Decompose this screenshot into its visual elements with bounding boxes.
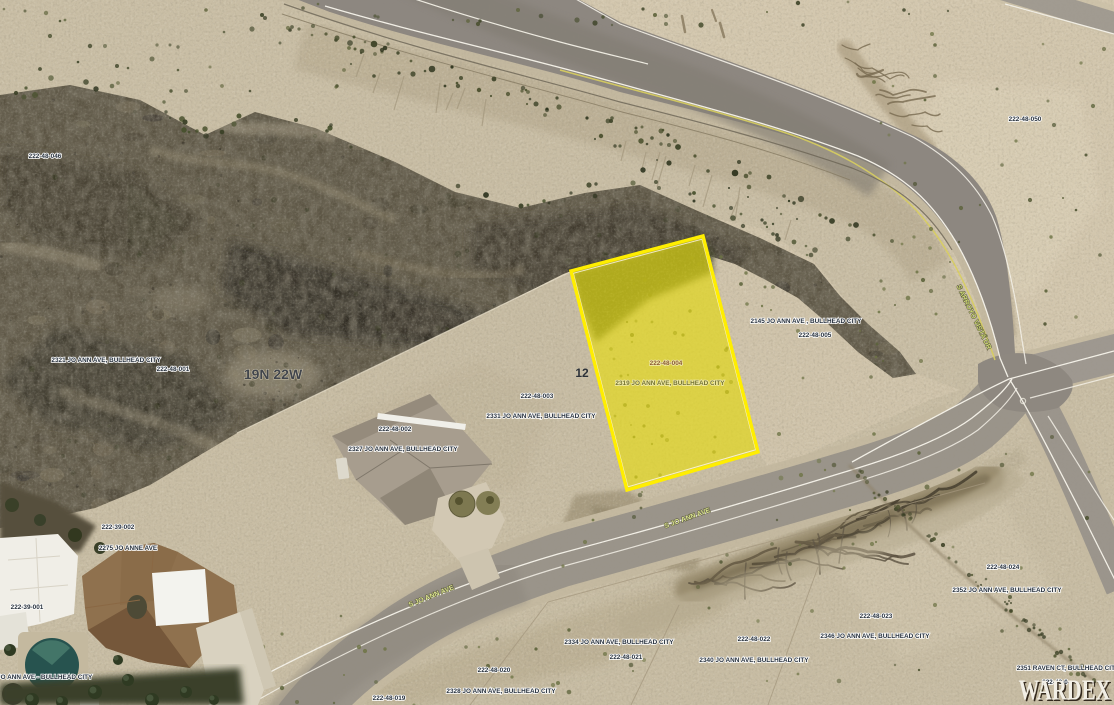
svg-text:222-48-002: 222-48-002 (379, 426, 412, 433)
svg-text:2346 JO ANN AVE, BULLHEAD CITY: 2346 JO ANN AVE, BULLHEAD CITY (820, 633, 930, 640)
svg-text:2327 JO ANN AVE, BULLHEAD CITY: 2327 JO ANN AVE, BULLHEAD CITY (348, 446, 458, 453)
svg-text:2352 JO ANN AVE, BULLHEAD CITY: 2352 JO ANN AVE, BULLHEAD CITY (952, 587, 1062, 594)
svg-text:WARDEX: WARDEX (1019, 676, 1111, 705)
svg-text:222-48-004: 222-48-004 (650, 360, 683, 367)
svg-text:2331 JO ANN AVE, BULLHEAD CITY: 2331 JO ANN AVE, BULLHEAD CITY (486, 413, 596, 420)
svg-text:5 JO ANN AVE - BULLHEAD CITY: 5 JO ANN AVE - BULLHEAD CITY (0, 674, 93, 681)
svg-text:222-48-050: 222-48-050 (1009, 116, 1042, 123)
svg-text:222-48-005: 222-48-005 (799, 332, 832, 339)
svg-text:12: 12 (575, 366, 589, 380)
svg-text:2145 JO ANN AVE , BULLHEAD CIT: 2145 JO ANN AVE , BULLHEAD CITY (751, 318, 863, 325)
svg-text:222-48-046: 222-48-046 (29, 153, 62, 160)
svg-text:222-39-001: 222-39-001 (11, 604, 44, 611)
svg-text:222-48-001: 222-48-001 (157, 366, 190, 373)
svg-text:2328 JO ANN AVE, BULLHEAD CITY: 2328 JO ANN AVE, BULLHEAD CITY (446, 688, 556, 695)
svg-text:2351 RAVEN CT, BULLHEAD CITY: 2351 RAVEN CT, BULLHEAD CITY (1017, 665, 1114, 672)
svg-text:2275 JO ANNE AVE: 2275 JO ANNE AVE (99, 545, 158, 552)
svg-text:222-48-023: 222-48-023 (860, 613, 893, 620)
svg-text:2321 JO ANN AVE, BULLHEAD CITY: 2321 JO ANN AVE, BULLHEAD CITY (51, 357, 161, 364)
svg-text:222-48-022: 222-48-022 (738, 636, 771, 643)
svg-text:2334 JO ANN AVE, BULLHEAD CITY: 2334 JO ANN AVE, BULLHEAD CITY (564, 639, 674, 646)
svg-text:222-48-020: 222-48-020 (478, 667, 511, 674)
svg-text:222-48-019: 222-48-019 (373, 695, 406, 702)
svg-text:222-48-003: 222-48-003 (521, 393, 554, 400)
svg-text:222-48-021: 222-48-021 (610, 654, 643, 661)
svg-text:2319 JO ANN AVE, BULLHEAD CITY: 2319 JO ANN AVE, BULLHEAD CITY (615, 380, 725, 387)
svg-text:222-48-024: 222-48-024 (987, 564, 1020, 571)
svg-text:222-39-002: 222-39-002 (102, 524, 135, 531)
svg-text:19N 22W: 19N 22W (244, 366, 303, 382)
svg-text:2340 JO ANN AVE, BULLHEAD CITY: 2340 JO ANN AVE, BULLHEAD CITY (699, 657, 809, 664)
